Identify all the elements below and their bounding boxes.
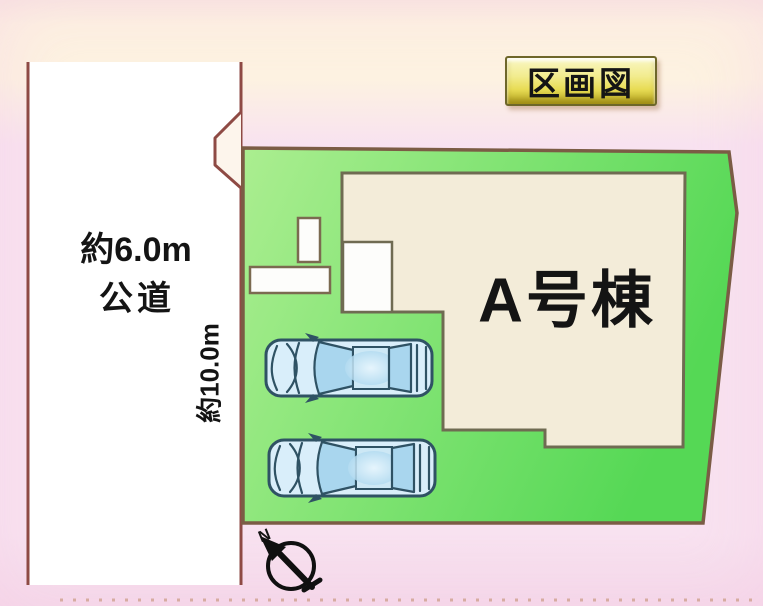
road-width-label: 約6.0m [80,233,192,269]
approach-step-horizontal [250,267,330,293]
entrance-porch [343,242,392,312]
plot-plan-canvas: 区画図 約6.0m 公道 約10.0m A号棟 N [0,0,763,606]
page-title: 区画図 [527,57,635,105]
lot-depth-label: 約10.0m [196,323,223,423]
title-plate: 区画図 [505,56,657,106]
car-2 [269,433,435,503]
approach-step-vertical [298,218,320,262]
building-name-label: A号棟 [478,268,656,333]
car-1 [266,333,432,403]
road-type-label: 公道 [99,282,175,318]
